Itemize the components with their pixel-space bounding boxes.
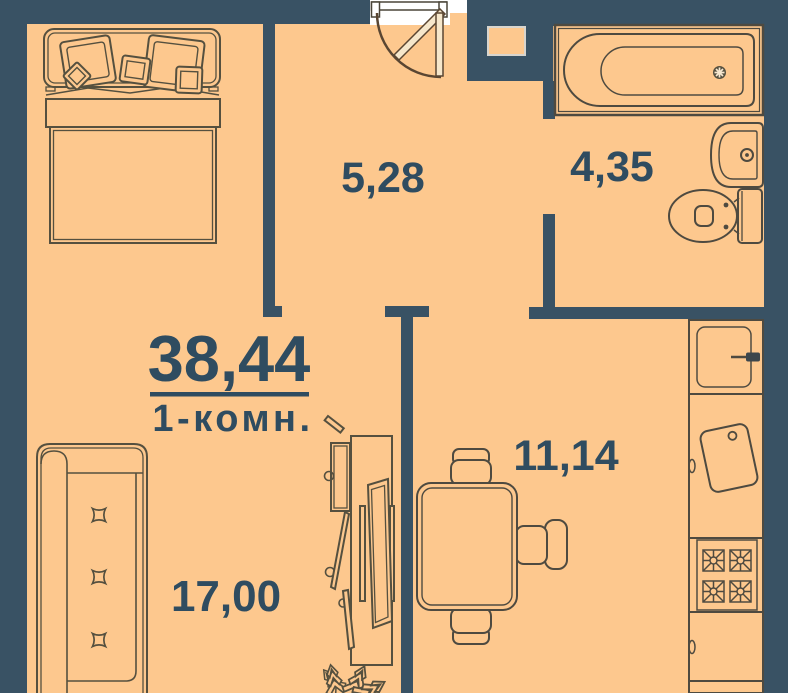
svg-text:11,14: 11,14 — [513, 432, 618, 480]
svg-text:17,00: 17,00 — [171, 572, 281, 621]
svg-text:5,28: 5,28 — [341, 154, 425, 202]
svg-text:4,35: 4,35 — [570, 143, 654, 191]
svg-text:1-комн.: 1-комн. — [152, 398, 313, 440]
svg-text:38,44: 38,44 — [148, 322, 311, 395]
